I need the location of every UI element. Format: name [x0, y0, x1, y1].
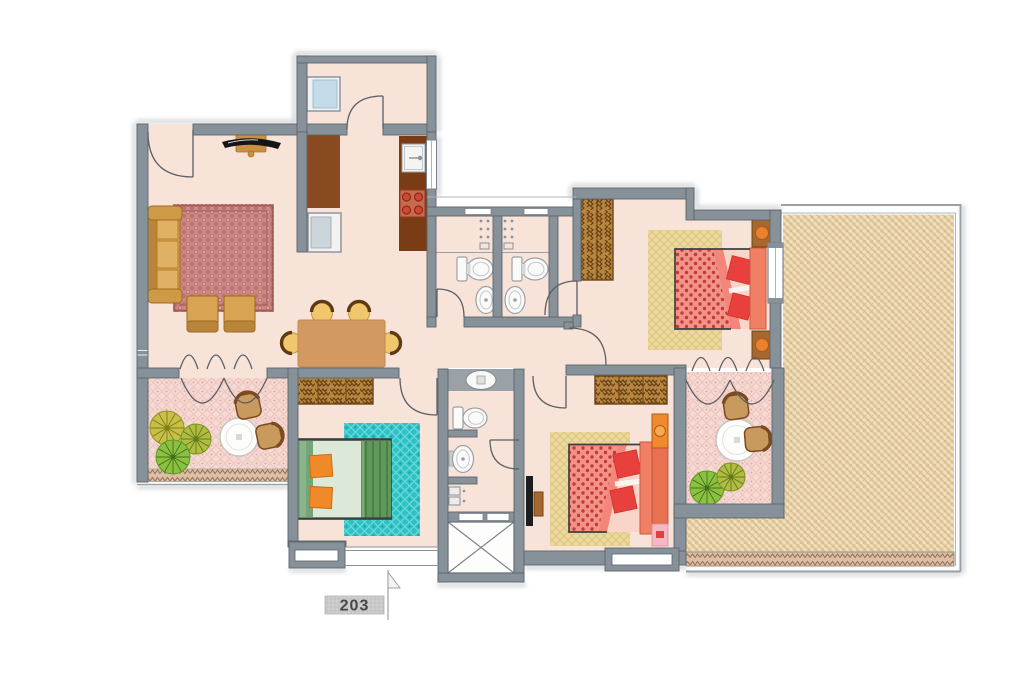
svg-text:203: 203 — [340, 598, 370, 615]
